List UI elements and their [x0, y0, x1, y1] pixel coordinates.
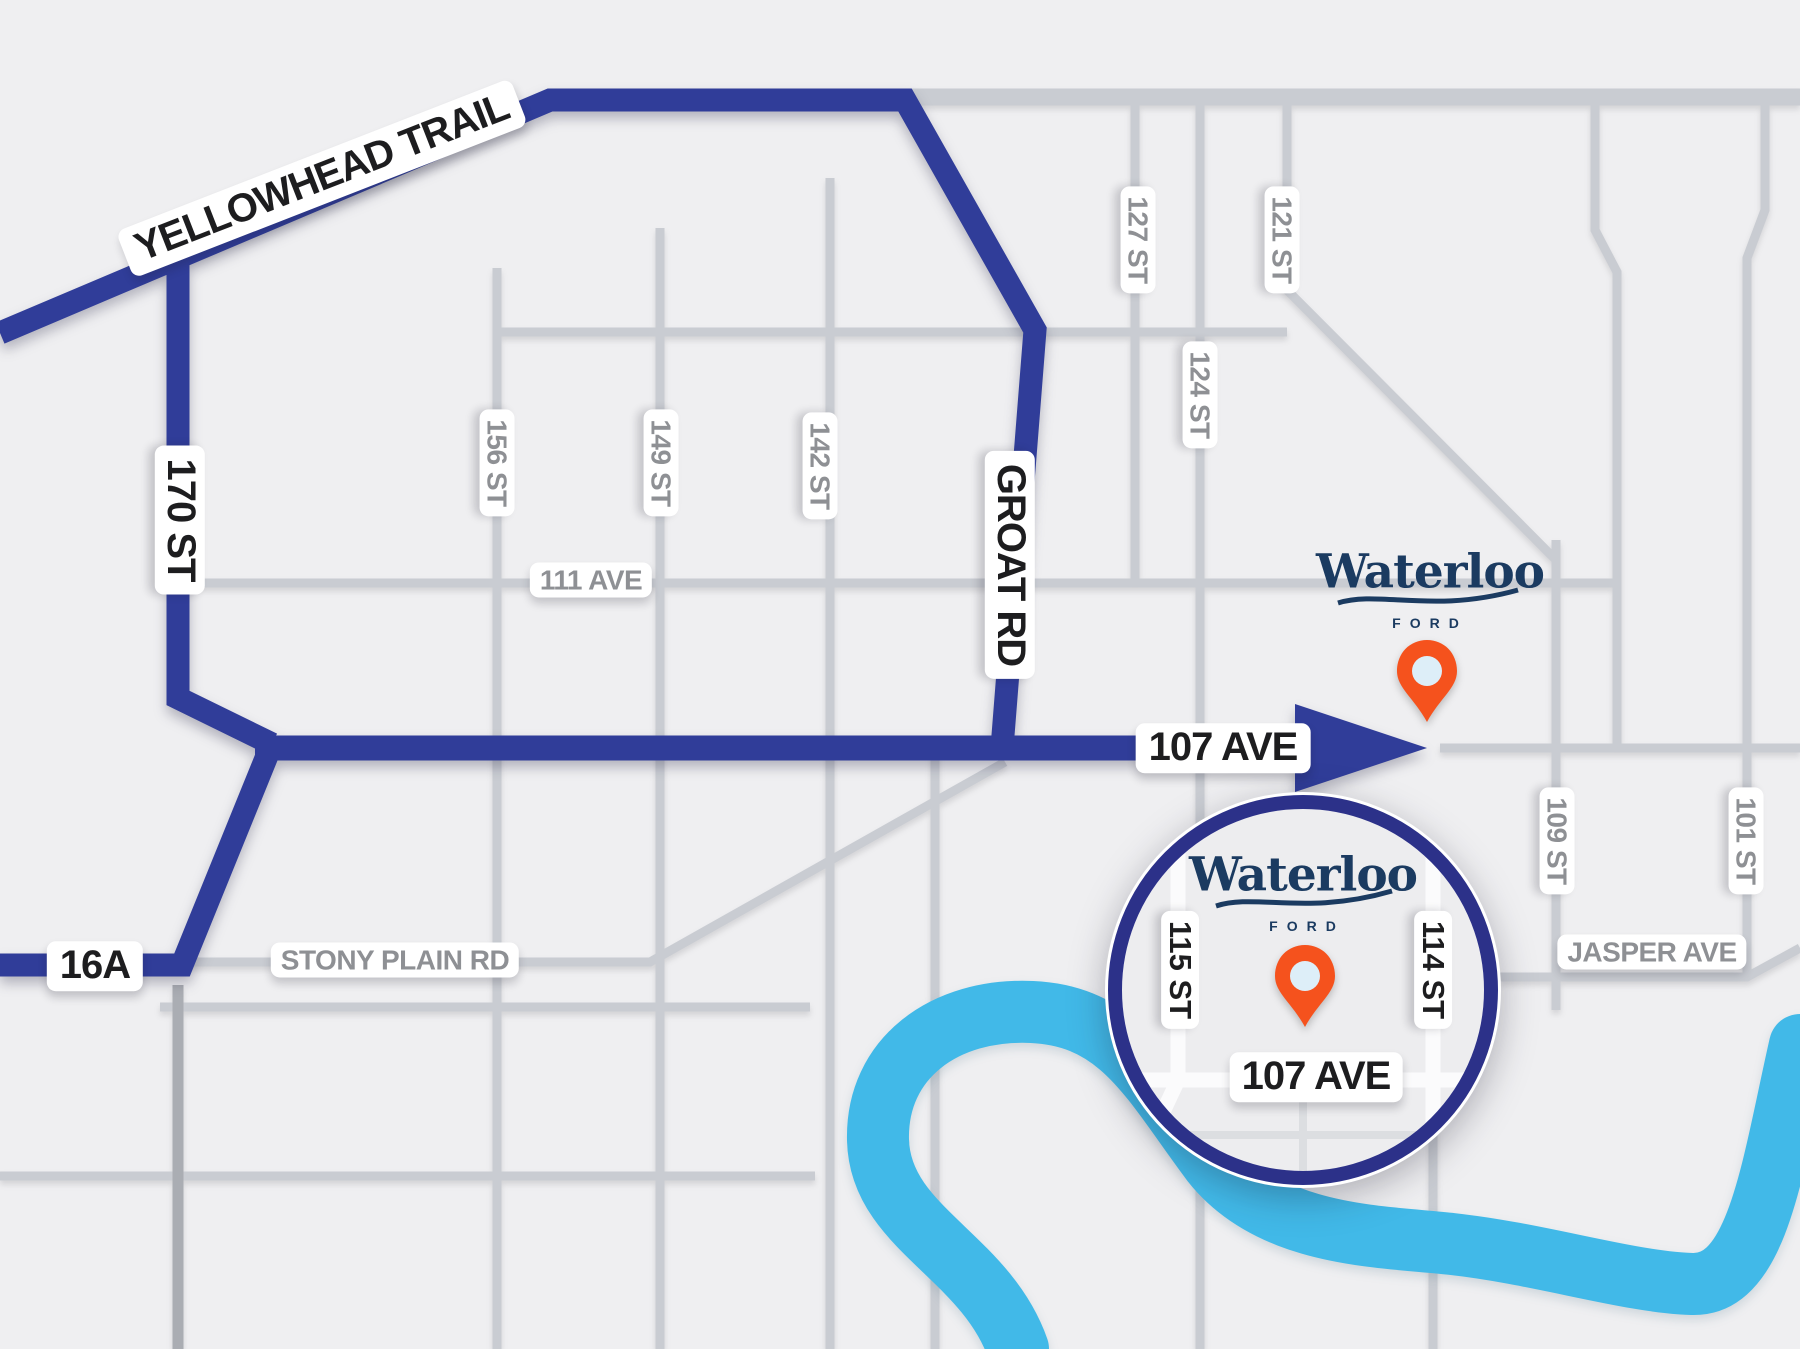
- label-109-st: 109 ST: [1539, 787, 1574, 894]
- label-groat-rd: GROAT RD: [985, 451, 1035, 679]
- ford-logo-text: FORD: [1392, 615, 1468, 631]
- route-yellowhead-groat: [0, 100, 1035, 748]
- label-111-ave: 111 AVE: [530, 562, 652, 597]
- label-170-st: 170 ST: [155, 446, 205, 595]
- label-107-ave: 107 AVE: [1136, 723, 1311, 773]
- label-127-st: 127 ST: [1120, 186, 1155, 293]
- label-jasper-ave: JASPER AVE: [1557, 934, 1746, 969]
- label-stony-plain-rd: STONY PLAIN RD: [271, 942, 519, 977]
- inset-label-115-st: 115 ST: [1161, 911, 1199, 1029]
- inset-label-107-ave: 107 AVE: [1230, 1052, 1403, 1102]
- label-101-st: 101 ST: [1728, 787, 1763, 894]
- inset-label-114-st: 114 ST: [1414, 911, 1452, 1029]
- road-stony-plain: [160, 762, 1005, 962]
- road-116-st: [1595, 105, 1617, 748]
- label-124-st: 124 ST: [1182, 341, 1217, 448]
- location-pin-icon: [1397, 640, 1457, 722]
- label-156-st: 156 ST: [479, 409, 514, 516]
- label-121-st: 121 ST: [1264, 186, 1299, 293]
- arrowhead-107-ave: [1295, 704, 1427, 792]
- waterloo-logo: Waterloo: [1316, 545, 1544, 600]
- label-142-st: 142 ST: [802, 412, 837, 519]
- route-16a: [0, 741, 273, 965]
- label-16a: 16A: [47, 941, 143, 991]
- inset-waterloo-logo: Waterloo: [1189, 848, 1417, 903]
- label-149-st: 149 ST: [643, 409, 678, 516]
- road-121-st: [1287, 105, 1556, 560]
- inset-ford-logo-text: FORD: [1269, 918, 1345, 934]
- map: YELLOWHEAD TRAIL 170 ST GROAT RD 107 AVE…: [0, 0, 1800, 1349]
